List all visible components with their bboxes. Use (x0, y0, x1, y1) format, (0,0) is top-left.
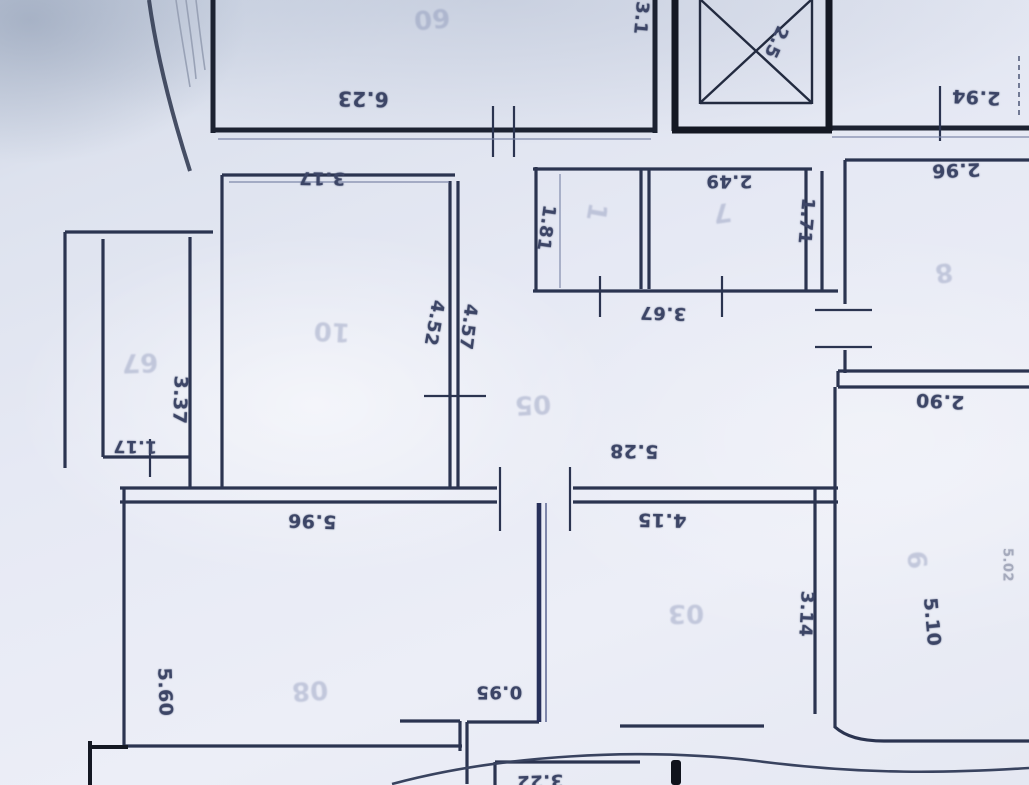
room-number-mark: 6 (900, 550, 931, 571)
room-marks-layer: 6010050386176708 (0, 0, 1029, 785)
room-number-mark: 8 (933, 256, 955, 288)
room-number-mark: 03 (668, 598, 705, 629)
room-number-mark: 60 (413, 1, 452, 34)
room-number-mark: 05 (514, 388, 552, 420)
room-number-mark: 7 (711, 196, 733, 228)
room-number-mark: 10 (313, 315, 351, 347)
floorplan-photo: 6.233.173.12.52.942.961.812.491.713.674.… (0, 0, 1029, 785)
room-number-mark: 67 (121, 346, 158, 377)
room-number-mark: 1 (580, 200, 613, 223)
room-number-mark: 08 (291, 674, 329, 706)
